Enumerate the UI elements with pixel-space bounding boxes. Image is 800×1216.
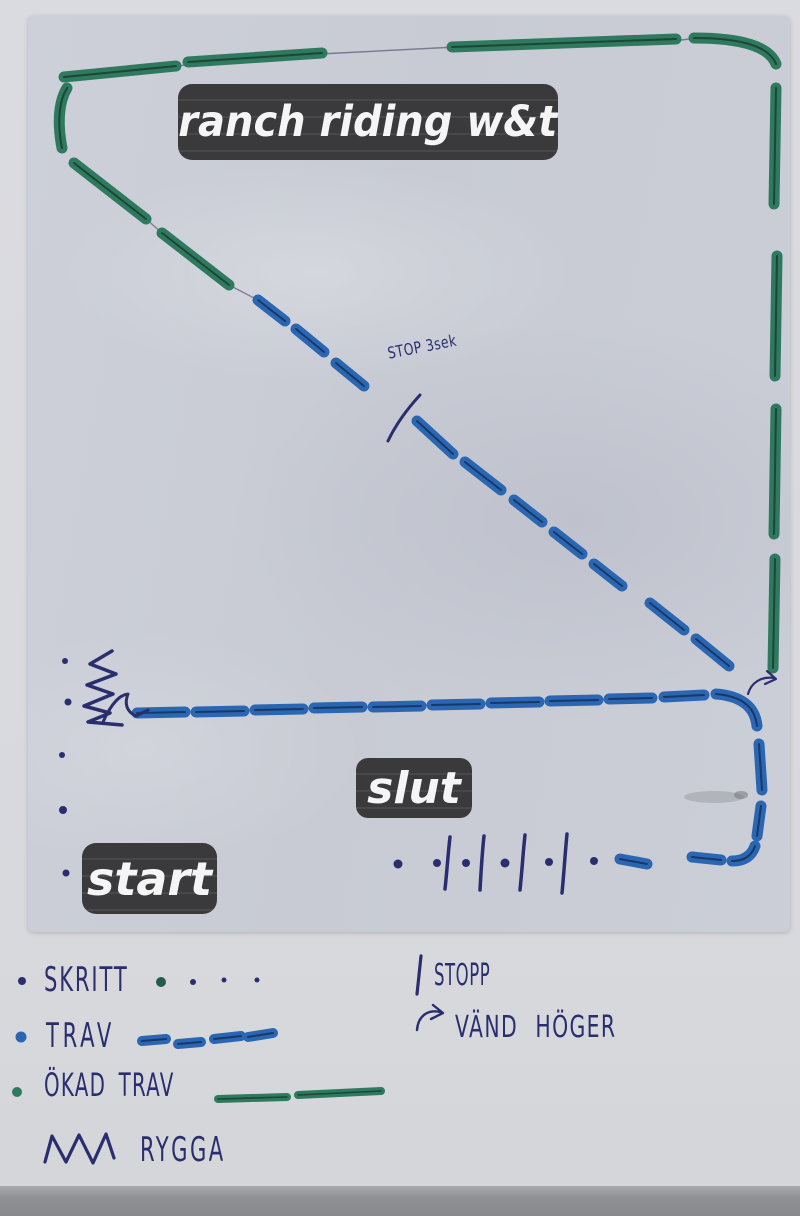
legend-item-trav: TRAV (46, 1016, 115, 1056)
start-label: start (87, 852, 212, 906)
legend-label-trav: TRAV (46, 1016, 115, 1056)
legend-label-stopp: STOPP (434, 958, 490, 993)
legend-label-okad-trav: ÖKAD TRAV (44, 1066, 175, 1104)
start-box: start (82, 843, 217, 914)
slut-label: slut (367, 763, 461, 814)
legend-label-skritt: SKRITT (44, 960, 129, 1000)
title-box: ranch riding w&t (178, 84, 558, 160)
legend-turn-right-arrow (417, 1005, 443, 1030)
slut-box: slut (356, 758, 472, 818)
legend-stopp-swatch (417, 956, 421, 994)
legend-label-rygga: RYGGA (140, 1130, 226, 1170)
legend-item-rygga: RYGGA (140, 1130, 226, 1170)
title-text: ranch riding w&t (179, 97, 558, 147)
table-edge-band (0, 1186, 800, 1216)
legend-label-vand-hoger: VÄND HÖGER (455, 1010, 616, 1045)
legend-rygga-swatch (45, 1134, 114, 1163)
legend-item-vand-hoger: VÄND HÖGER (455, 1010, 616, 1045)
legend-item-stopp: STOPP (434, 958, 490, 993)
legend-item-okad-trav: ÖKAD TRAV (44, 1066, 175, 1104)
legend-item-skritt: SKRITT (44, 960, 129, 1000)
course-photo: ranch riding w&t STOP 3sek slut start SK… (0, 0, 800, 1216)
